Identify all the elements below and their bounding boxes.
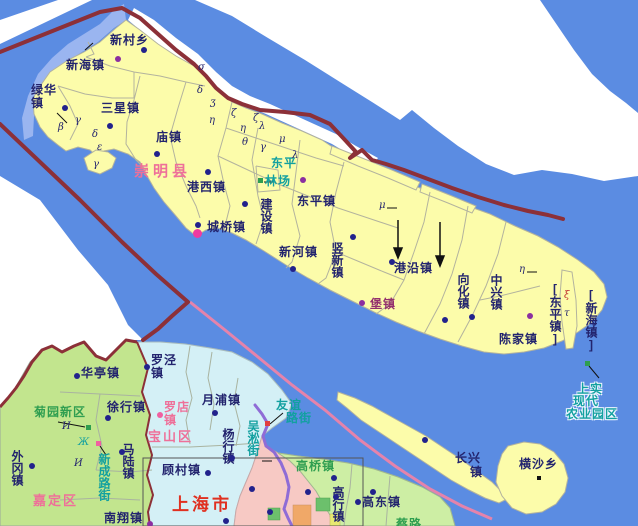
dot-luhua-marker [62,105,68,111]
dot-xuhang-marker [105,415,111,421]
map-label-shanghaishi: 上海市 [172,498,232,511]
shore-symbol-14: γ [260,142,266,153]
map-label-huatingzhen: 华亭镇 [81,367,120,380]
map-label-changxing-2: 镇 [470,466,483,479]
map-label-chenjiazhen: 陈家镇 [499,333,538,346]
map-label-wusongjie: 吴淞街 [246,420,260,456]
dot-jianshe-marker [242,201,248,207]
dot-xianghua-marker [442,317,448,323]
sq-youyi-marker [265,421,270,426]
shore-symbol-4: γ [93,159,99,170]
dot-changxing-marker [422,437,428,443]
map-label-jiadingqu: 嘉定区 [33,494,78,507]
shore-symbol-22: Ж [78,437,89,448]
shore-symbol-6: δ [197,85,203,96]
urban-patch-orange [293,505,311,526]
map-label-cailu: 蔡路 [396,518,422,526]
map-label-sanxingzhen: 三星镇 [101,102,140,115]
sq-shangshi-marker [585,361,590,366]
map-geometry [0,0,638,526]
map-label-xinhaizhen-bracket: [新海镇] [584,288,598,352]
map-label-hengshaxiang: 横沙乡 [519,458,558,471]
map-label-gangyanzhen: 港沿镇 [394,262,433,275]
map-label-xianghuazhen: 向化镇 [456,273,470,309]
map-label-gaoqiaozhen: 高桥镇 [296,460,335,473]
shore-symbol-9: ζ [231,108,236,119]
map-label-luhuazhen: 绿华 镇 [31,84,57,110]
shore-symbol-11: ζ [253,113,258,124]
map-label-nanxiangzhen: 南翔镇 [104,512,143,525]
dot-gangyan-marker [389,259,395,265]
map-label-xinchenglujie: 新成路街 [97,453,111,501]
shore-symbol-16: λ [292,150,298,161]
dot-xinhai-marker [115,56,121,62]
map-label-shangshi-3: 农业园区 [566,408,618,421]
shore-symbol-2: δ [92,129,98,140]
dot-xincun-marker [141,47,147,53]
shore-symbol-3: ε [97,142,102,153]
dot-urban-1-marker [249,486,255,492]
map-label-gaohangzhen: 高行镇 [331,486,345,522]
dot-urban-5-marker [355,499,361,505]
sq-linchang-marker [258,178,263,183]
dot-miao-marker [154,151,160,157]
dot-urban-3-marker [305,489,311,495]
dot-xinhe-marker [290,266,296,272]
dot-gucun-marker [205,470,211,476]
dot-gaodong-marker [370,489,376,495]
map-label-gangxizhen: 港西镇 [187,181,226,194]
map-label-luojingzhen: 罗泾 镇 [151,354,177,380]
map-label-changxing-1: 长兴 [455,452,481,465]
map-label-dongping-2: 林场 [265,175,291,188]
map-label-dongpingzhen-bracket: [东平镇] [548,282,562,346]
map-label-dongpingzhen: 东平镇 [297,195,336,208]
dot-urban-6-marker [223,518,229,524]
dot-urban-4-marker [333,494,339,500]
map-label-baozhen: 堡镇 [370,298,396,311]
dot-baozhen-marker [359,300,365,306]
dot-chengqiao-marker [195,222,201,228]
dot-gaoqiao-marker [331,475,337,481]
map-label-xinhaizhen: 新海镇 [66,59,105,72]
shore-symbol-7: ʒ [210,97,216,108]
dot-nanxiang-marker [147,521,153,526]
map-label-waigangzhen: 外冈镇 [10,450,24,486]
shore-symbol-20: τ [564,308,570,319]
shore-symbol-23: И [74,458,83,469]
shore-symbol-12: λ [259,121,265,132]
map-label-shuxinzhen: 竖新镇 [330,242,344,278]
dot-luodian-marker [157,412,163,418]
dot-waigang-marker [29,463,35,469]
shore-symbol-10: η [240,123,246,134]
dot-yanghang-marker [229,455,235,461]
shore-symbol-13: θ [242,137,248,148]
shore-symbol-5: σ [198,62,205,73]
shore-symbol-0: β [58,122,64,133]
sq-juyuan-marker [86,425,91,430]
dot-malu-marker [119,449,125,455]
dot-chengqiao-seat-marker [193,229,202,238]
shore-symbol-18: η [519,264,525,275]
dot-shuxin-marker [350,234,356,240]
map-canvas[interactable]: 新村乡新海镇绿华 镇三星镇庙镇崇明县港西镇东平林场东平镇建设镇城桥镇新河镇竖新镇… [0,0,638,526]
shore-symbol-15: μ [279,134,286,145]
map-label-xincunxiang: 新村乡 [110,34,149,47]
map-label-baoshanqu: 宝山区 [148,430,193,443]
map-label-chengqiaozhen: 城桥镇 [207,221,246,234]
shore-symbol-17: μ [379,200,386,211]
map-label-zhongxingzhen: 中兴镇 [489,274,503,310]
dot-zhongxing-marker [469,314,475,320]
shore-symbol-1: γ [75,115,81,126]
map-label-luodianzhen: 罗店 镇 [164,401,190,427]
dot-chenjia-marker [527,313,533,319]
dot-urban-2-marker [267,509,273,515]
urban-patch-green-1 [316,498,330,511]
map-label-jianshezhen: 建设镇 [259,198,273,234]
shore-symbol-21: И [62,421,71,432]
dot-dongping-marker [300,177,306,183]
shore-symbol-8: η [209,115,215,126]
dot-yuepu-marker [212,410,218,416]
dot-sanxing-marker [107,123,113,129]
dot-luojing-marker [144,364,150,370]
sq-xincheng-marker [96,441,101,446]
map-label-gucunzhen: 顾村镇 [162,464,201,477]
map-label-chongmingxian: 崇明县 [134,165,191,178]
dot-huating-marker [74,373,80,379]
map-label-xuhangzhen: 徐行镇 [107,401,146,414]
dot-gangxi-marker [205,169,211,175]
map-label-juyuanxinqu: 菊园新区 [34,406,86,419]
map-label-miaozhen: 庙镇 [156,131,182,144]
map-label-yuepuzhen: 月浦镇 [202,394,241,407]
map-label-xinhezhen: 新河镇 [279,246,318,259]
map-label-youyi-2: 路街 [286,412,312,425]
sq-hengsha-marker [537,476,541,480]
shore-symbol-19: ξ [564,290,570,301]
map-label-gaodongzhen: 高东镇 [362,496,401,509]
